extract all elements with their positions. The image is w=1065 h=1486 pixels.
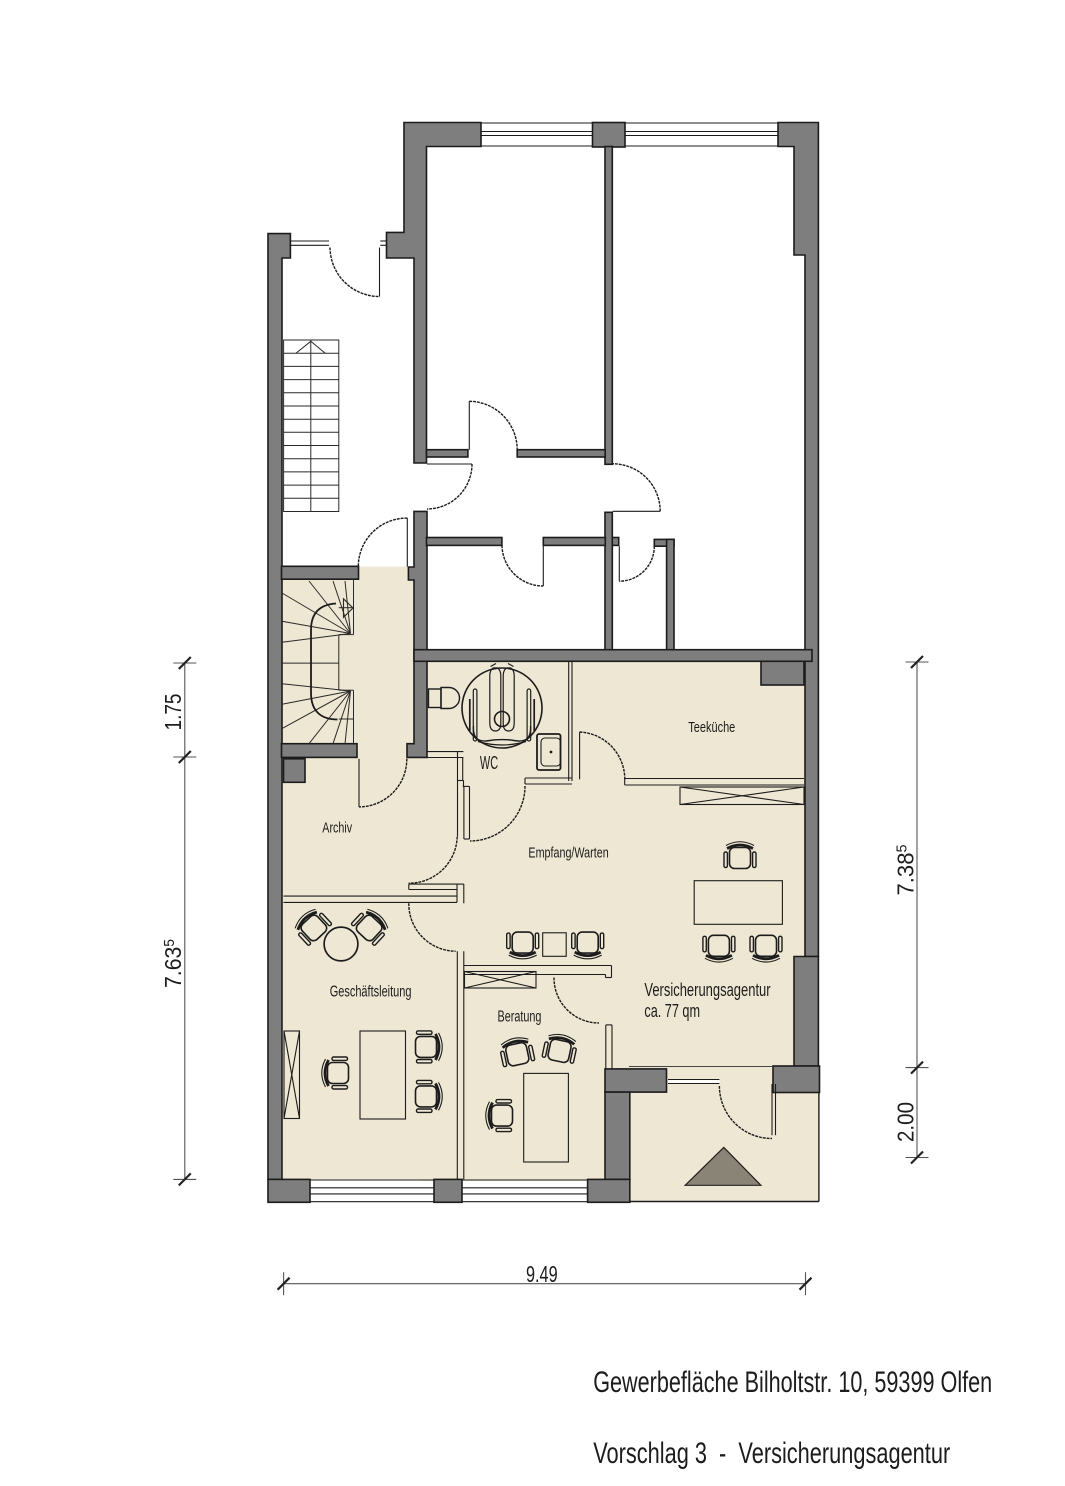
svg-text:Versicherungsagentur: Versicherungsagentur xyxy=(644,980,770,1000)
svg-text:Teeküche: Teeküche xyxy=(688,719,735,736)
svg-text:Empfang/Warten: Empfang/Warten xyxy=(528,845,608,862)
svg-text:Gewerbefläche Bilholtstr. 10,: Gewerbefläche Bilholtstr. 10, 59399 Olfe… xyxy=(593,1366,992,1399)
svg-text:Beratung: Beratung xyxy=(498,1009,542,1026)
svg-text:Archiv: Archiv xyxy=(322,820,352,837)
svg-text:WC: WC xyxy=(480,753,498,773)
svg-text:Vorschlag 3 - Versicherungsa: Vorschlag 3 - Versicherungsagentur xyxy=(593,1437,950,1470)
svg-text:2.00: 2.00 xyxy=(893,1102,919,1142)
svg-text:9.49: 9.49 xyxy=(526,1261,558,1287)
svg-text:1.75: 1.75 xyxy=(160,694,186,731)
svg-text:ca. 77 qm: ca. 77 qm xyxy=(644,1001,700,1021)
svg-text:Geschäftsleitung: Geschäftsleitung xyxy=(330,984,412,1001)
